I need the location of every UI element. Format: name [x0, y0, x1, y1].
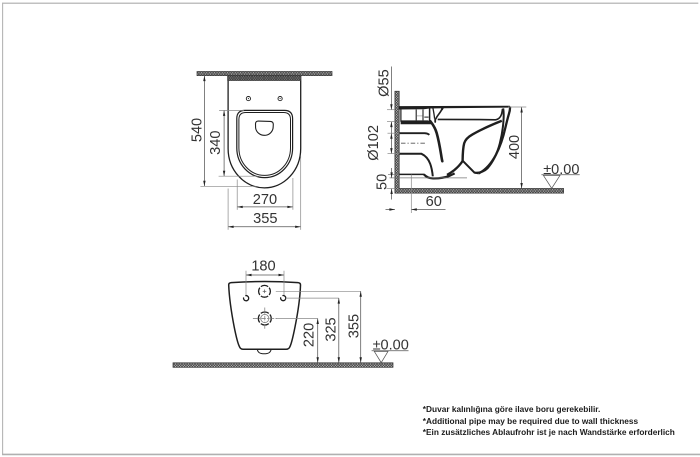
svg-text:540: 540 — [190, 118, 206, 142]
svg-text:50: 50 — [375, 174, 391, 190]
svg-text:Ø102: Ø102 — [366, 125, 382, 161]
svg-text:325: 325 — [323, 317, 339, 341]
svg-text:Ø55: Ø55 — [376, 69, 392, 97]
svg-text:270: 270 — [253, 192, 277, 208]
svg-text:180: 180 — [251, 259, 275, 275]
svg-text:400: 400 — [507, 135, 523, 159]
svg-text:355: 355 — [346, 314, 362, 338]
svg-text:340: 340 — [208, 131, 224, 155]
svg-text:220: 220 — [302, 323, 318, 347]
svg-text:60: 60 — [426, 194, 442, 210]
svg-text:355: 355 — [253, 211, 277, 227]
